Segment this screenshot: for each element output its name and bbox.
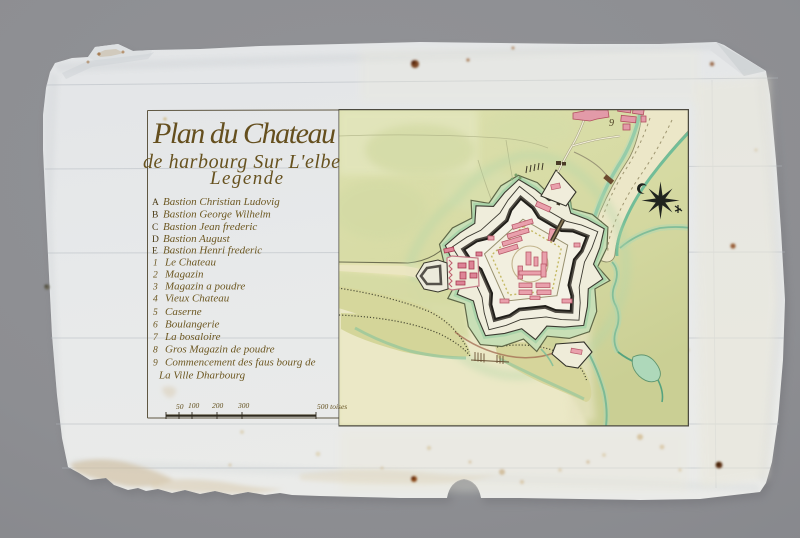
svg-text:de harbourg Sur L'elbe: de harbourg Sur L'elbe [143,151,340,173]
svg-text:Plan du Chateau: Plan du Chateau [152,117,336,150]
svg-text:100: 100 [188,401,200,410]
svg-text:50: 50 [176,402,184,411]
svg-text:ABastion Christian Ludovig: ABastion Christian Ludovig [152,196,280,208]
svg-text:200: 200 [212,401,224,410]
svg-text:La Ville Dharbourg: La Ville Dharbourg [158,370,246,382]
svg-text:4Vieux Chateau: 4Vieux Chateau [153,293,230,305]
svg-text:8Gros Magazin de poudre: 8Gros Magazin de poudre [153,344,275,356]
svg-text:Legende: Legende [209,168,283,189]
svg-text:9Commencement des faus bourg d: 9Commencement des faus bourg de [153,357,316,369]
svg-text:EBastion Henri frederic: EBastion Henri frederic [152,245,262,257]
svg-text:3Magazin a poudre: 3Magazin a poudre [152,281,245,293]
svg-text:9: 9 [609,118,614,129]
svg-text:300: 300 [237,401,250,410]
svg-text:500 toises: 500 toises [317,402,347,411]
svg-text:DBastion August: DBastion August [152,233,231,245]
svg-text:CBastion Jean frederic: CBastion Jean frederic [152,221,257,233]
svg-text:BBastion George Wilhelm: BBastion George Wilhelm [152,209,271,221]
